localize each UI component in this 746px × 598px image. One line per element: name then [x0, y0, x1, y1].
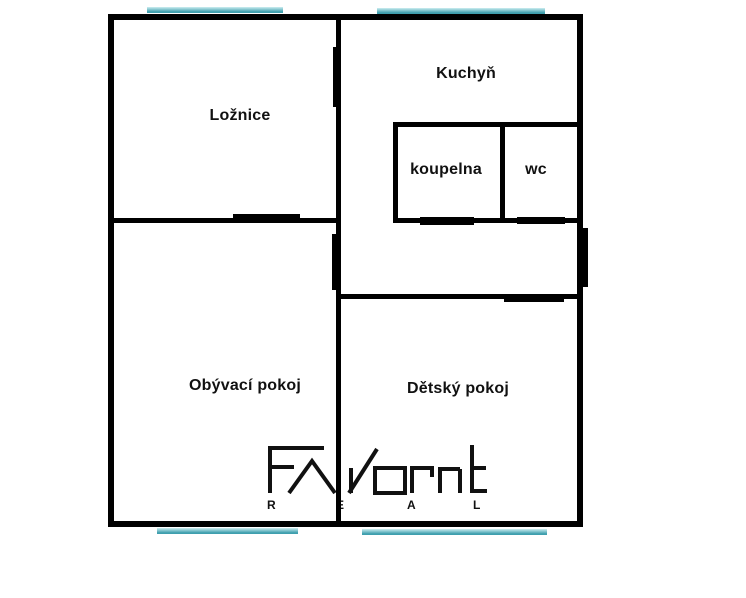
room-label-kuchyn: Kuchyň	[436, 65, 496, 83]
favorit-logo: R E A L	[256, 441, 488, 515]
door-hall-obyvaci	[332, 234, 340, 290]
door-hall-detsky	[504, 294, 564, 302]
wall-koupelna-wc-divider	[500, 127, 505, 223]
logo-letter-a: A	[407, 498, 416, 512]
room-label-detsky-pokoj: Dětský pokoj	[407, 380, 509, 398]
door-koupelna	[420, 217, 474, 225]
floorplan-canvas: Ložnice Kuchyň koupelna wc Obývací pokoj…	[0, 0, 746, 598]
wall-bathroom-left	[393, 122, 398, 223]
window-loznice	[147, 7, 283, 13]
room-label-obyvaci-pokoj: Obývací pokoj	[189, 377, 301, 395]
door-loznice-kuchyn	[333, 47, 340, 107]
logo-letter-l: L	[473, 498, 480, 512]
logo-letter-r: R	[267, 498, 276, 512]
wall-outer-top	[108, 14, 583, 20]
wall-loznice-bottom	[114, 218, 341, 223]
window-obyvaci-pokoj	[157, 528, 298, 534]
room-label-wc: wc	[525, 161, 547, 179]
door-loznice-obyvaci	[233, 214, 300, 221]
window-detsky-pokoj	[362, 529, 547, 535]
room-label-koupelna: koupelna	[410, 161, 482, 179]
room-label-loznice: Ložnice	[210, 107, 271, 125]
wall-bathroom-top	[393, 122, 577, 127]
favorit-wordmark	[268, 445, 487, 493]
wall-outer-left	[108, 14, 114, 527]
wall-outer-bottom	[108, 521, 583, 527]
door-wc	[517, 217, 565, 224]
door-entrance	[581, 228, 588, 287]
